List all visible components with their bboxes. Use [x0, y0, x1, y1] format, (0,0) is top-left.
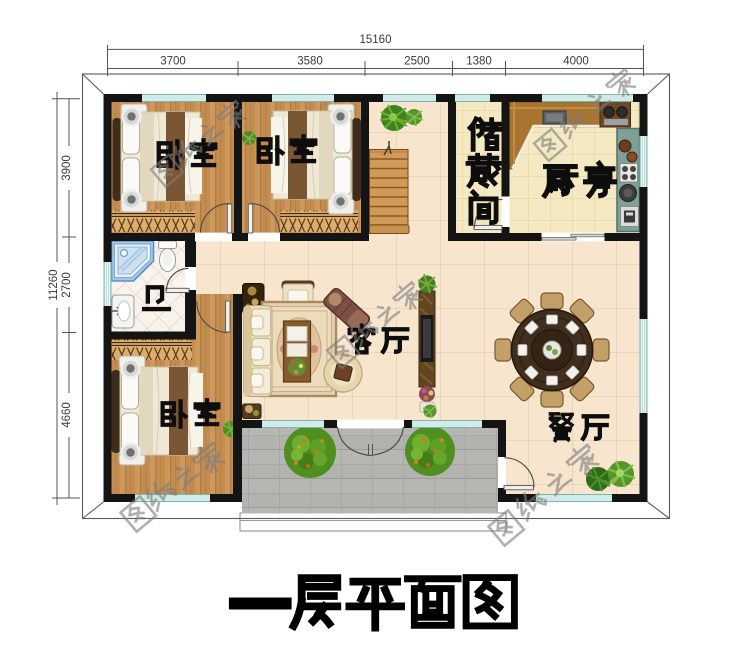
svg-text:2700: 2700	[61, 272, 73, 298]
svg-text:15160: 15160	[360, 34, 392, 46]
svg-text:11260: 11260	[48, 269, 60, 300]
svg-text:3580: 3580	[297, 56, 323, 68]
svg-text:4000: 4000	[563, 56, 589, 68]
svg-text:1380: 1380	[466, 56, 492, 68]
svg-text:3700: 3700	[160, 56, 186, 68]
svg-text:2500: 2500	[404, 56, 430, 68]
svg-text:4660: 4660	[61, 402, 73, 428]
svg-text:3900: 3900	[61, 155, 73, 181]
